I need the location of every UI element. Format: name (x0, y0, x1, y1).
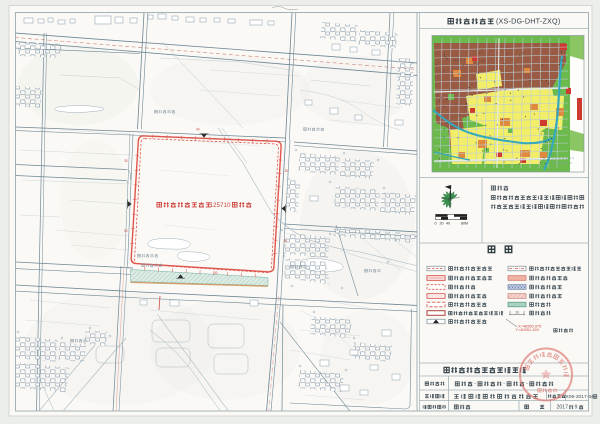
svg-text:9: 9 (575, 405, 578, 411)
svg-text:2017: 2017 (557, 405, 569, 411)
svg-text:(XS-DG-DHT-ZXQ): (XS-DG-DHT-ZXQ) (496, 17, 561, 26)
svg-text:0: 0 (435, 222, 437, 226)
svg-text:40: 40 (196, 128, 200, 132)
svg-text:35: 35 (285, 169, 289, 173)
svg-text:30: 30 (124, 229, 128, 233)
svg-text:24: 24 (284, 239, 288, 243)
svg-text:10: 10 (515, 311, 519, 315)
svg-text:Y=40051.159: Y=40051.159 (516, 327, 539, 332)
svg-text:40: 40 (446, 222, 450, 226)
svg-text:20: 20 (440, 222, 444, 226)
svg-text:80M: 80M (461, 222, 468, 226)
svg-text:125710: 125710 (210, 202, 232, 209)
svg-text:35: 35 (124, 159, 128, 163)
svg-text:X06-2017-34: X06-2017-34 (566, 394, 595, 400)
svg-text:40: 40 (214, 271, 218, 275)
